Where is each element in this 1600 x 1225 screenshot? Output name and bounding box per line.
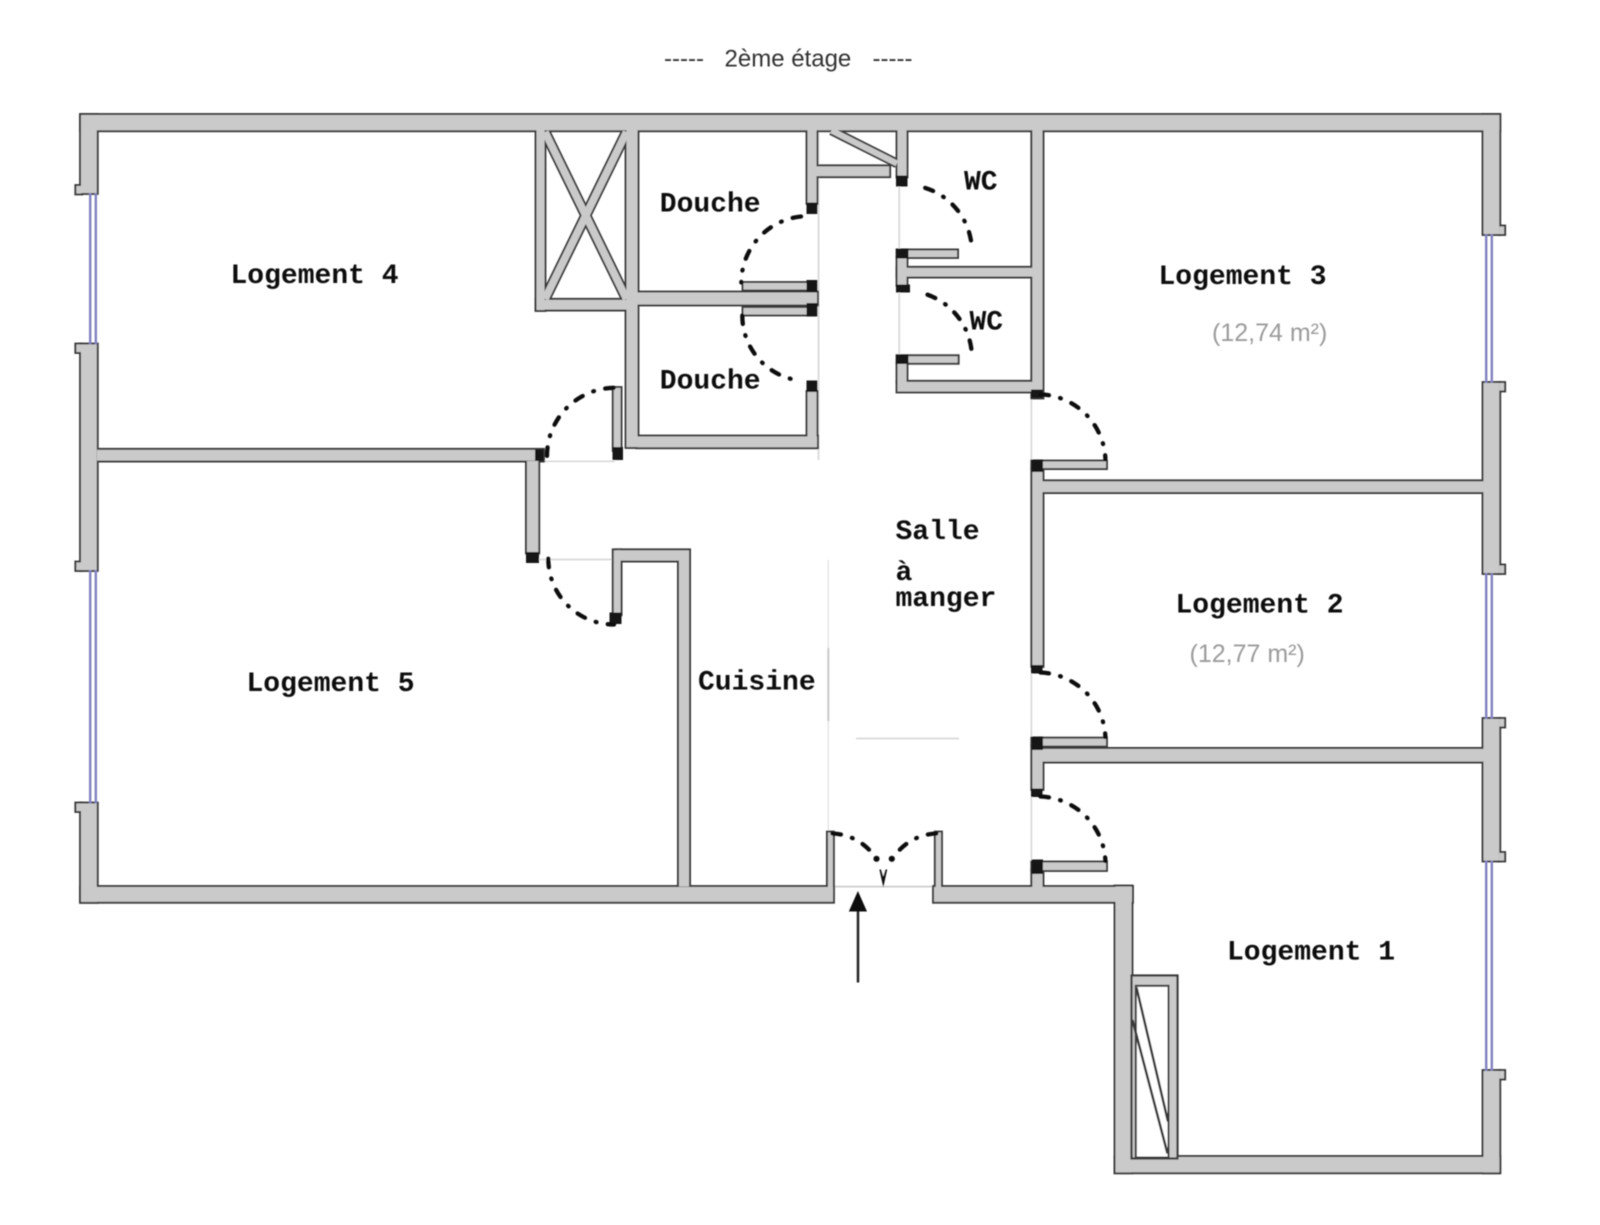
svg-text:Douche: Douche (660, 190, 761, 221)
svg-text:-----: ----- (873, 46, 913, 73)
svg-text:manger: manger (896, 584, 997, 615)
svg-text:Logement 3: Logement 3 (1159, 262, 1327, 293)
svg-text:-----: ----- (664, 46, 704, 73)
svg-text:Salle: Salle (896, 517, 980, 548)
svg-text:2ème étage: 2ème étage (725, 46, 852, 73)
svg-text:(12,74 m²): (12,74 m²) (1212, 319, 1327, 347)
svg-text:Logement 2: Logement 2 (1176, 591, 1344, 622)
svg-text:WC: WC (970, 308, 1004, 339)
svg-text:Logement 5: Logement 5 (247, 669, 415, 700)
svg-text:Douche: Douche (660, 367, 761, 398)
svg-text:Cuisine: Cuisine (698, 668, 816, 699)
svg-text:WC: WC (964, 168, 998, 199)
svg-text:Logement 4: Logement 4 (231, 261, 399, 292)
svg-text:Logement 1: Logement 1 (1227, 938, 1395, 969)
svg-text:(12,77 m²): (12,77 m²) (1190, 640, 1305, 668)
